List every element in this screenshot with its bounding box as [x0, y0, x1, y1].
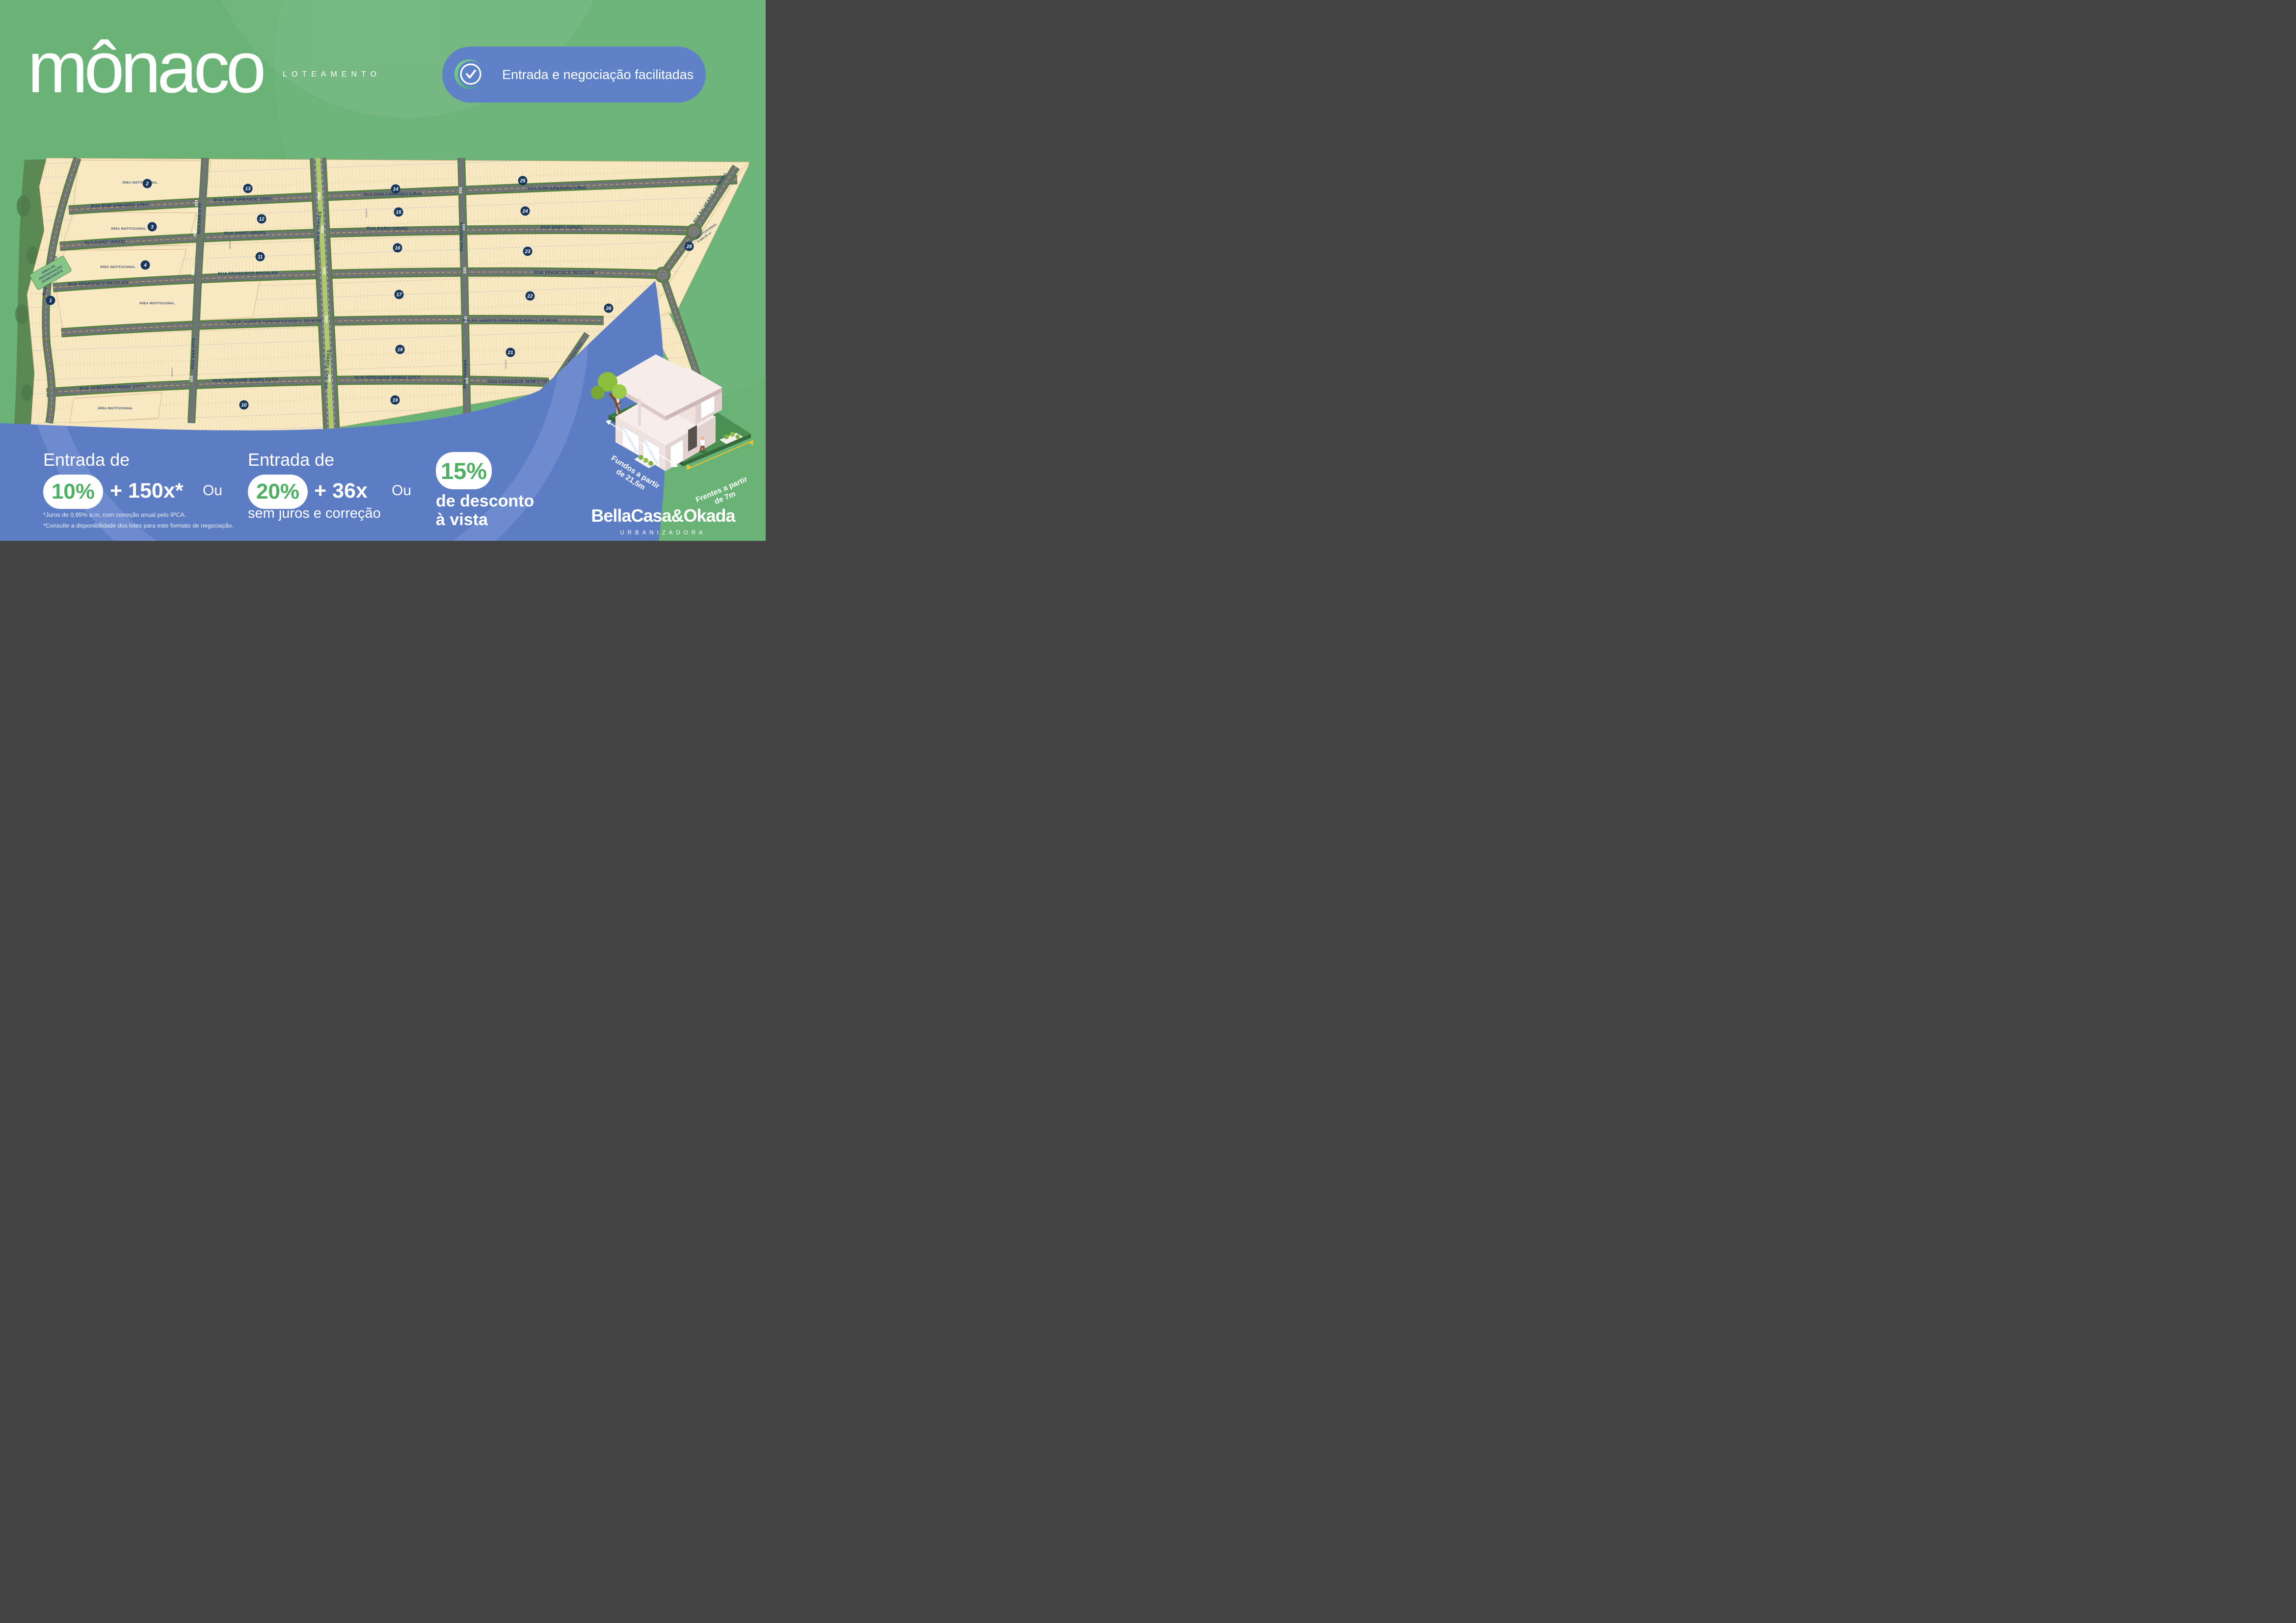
- offer-3-pill: 15%: [436, 452, 492, 489]
- svg-text:23: 23: [524, 249, 531, 255]
- street-panama-label: RUA PANAMÁ: [459, 222, 464, 251]
- logo-wordmark: mônaco: [27, 31, 263, 104]
- developer-logo: BellaCasa&Okada URBANIZADORA: [586, 506, 741, 536]
- quadra-badge: 1: [46, 296, 55, 305]
- institutional-label: ÁREA INSTITUCIONAL: [139, 302, 175, 305]
- institutional-label: ÁREA INSTITUCIONAL: [122, 181, 158, 185]
- offer-2-connector: Ou: [392, 482, 411, 499]
- svg-text:13: 13: [245, 186, 251, 192]
- svg-text:17: 17: [396, 293, 402, 298]
- check-circle-icon: [454, 58, 486, 90]
- quadra-badge: 11: [256, 252, 265, 262]
- offer-3-discount-line-1: de desconto: [436, 492, 534, 511]
- offer-2-note: sem juros e correção: [248, 506, 381, 522]
- svg-text:14: 14: [393, 187, 399, 192]
- institutional-label: ÁREA INSTITUCIONAL: [98, 407, 133, 410]
- quadra-badge: 17: [395, 290, 404, 299]
- street-darci-label: RUA DARCI ISRAEL: [367, 226, 409, 231]
- disclaimer-line-2: *Consulte a disponibilidade dos lotes pa…: [43, 521, 234, 531]
- street-drumond-label: RUA DR. ALBERTO FERNANDO BARDDAL DRUMOND: [463, 319, 558, 322]
- disclaimer-line-1: *Juros de 0,95% a.m, com correção anual …: [43, 510, 186, 520]
- offer-1-pill: 10%: [43, 475, 103, 509]
- quadra-badge: 28: [685, 242, 694, 251]
- svg-text:150,00 m²: 150,00 m²: [171, 367, 173, 377]
- feature-badge: Entrada e negociação facilitadas: [442, 47, 706, 103]
- street-maculan-label: RUA FRANCISCO MACULAN: [534, 270, 594, 275]
- roundabout-2: [655, 267, 670, 282]
- svg-text:15: 15: [396, 210, 401, 215]
- quadra-badge: 15: [394, 208, 403, 217]
- svg-text:16: 16: [395, 246, 400, 251]
- offer-2-installments: + 36x: [314, 479, 368, 503]
- svg-text:4: 4: [143, 263, 147, 268]
- svg-text:151,88 m²: 151,88 m²: [365, 208, 368, 218]
- offer-2-pill: 20%: [248, 475, 308, 509]
- svg-text:25: 25: [519, 179, 526, 184]
- quadra-badge: 19: [391, 396, 400, 405]
- quadra-badge: 21: [506, 348, 515, 357]
- institutional-label: ÁREA INSTITUCIONAL: [111, 227, 146, 231]
- developer-subtitle: URBANIZADORA: [586, 530, 741, 536]
- svg-text:21: 21: [507, 350, 513, 356]
- poster-canvas: RUA DOM ARMANDO CÍRIO RUA DOM ARMANDO CÍ…: [0, 0, 766, 541]
- quadra-badge: 13: [243, 184, 253, 193]
- offer-1-connector: Ou: [203, 482, 222, 499]
- quadra-badge: 12: [257, 214, 267, 224]
- quadra-badge: 14: [391, 185, 400, 194]
- quadra-badge: 10: [240, 400, 249, 410]
- quadra-badge: 2: [143, 179, 152, 188]
- svg-text:24: 24: [522, 209, 528, 214]
- quadra-badge: 3: [148, 222, 157, 232]
- svg-text:150,50 m²: 150,50 m²: [229, 239, 231, 249]
- street-zotti-label: RUA VEREADOR IRINEU ZOTTI: [488, 379, 554, 384]
- svg-text:12: 12: [259, 217, 265, 222]
- offer-1-heading: Entrada de: [43, 450, 130, 470]
- street-panama-label: RUA PANAMÁ: [462, 359, 467, 389]
- svg-text:26: 26: [605, 306, 612, 312]
- svg-text:1: 1: [49, 298, 52, 304]
- institutional-label: ÁREA INSTITUCIONAL: [100, 266, 135, 269]
- quadra-badge: 24: [521, 207, 530, 216]
- developer-name: BellaCasa&Okada: [586, 506, 741, 526]
- quadra-badge: 16: [393, 243, 402, 253]
- offer-3-discount-line-2: à vista: [436, 510, 488, 530]
- quadra-badge: 4: [141, 261, 150, 270]
- quadra-badge: 26: [604, 304, 614, 313]
- svg-text:10: 10: [241, 403, 247, 408]
- svg-text:19: 19: [392, 398, 398, 403]
- quadra-badge: 25: [518, 176, 528, 186]
- svg-text:11: 11: [258, 255, 263, 260]
- street-darci-label: RUA DARCI ISRAEL: [224, 230, 267, 235]
- svg-text:28: 28: [686, 244, 692, 250]
- logo-subtitle: LOTEAMENTO: [283, 70, 381, 79]
- offer-1-installments: + 150x*: [110, 479, 183, 503]
- quadra-badge: 22: [526, 292, 535, 301]
- svg-text:22: 22: [527, 294, 533, 299]
- svg-text:2: 2: [145, 182, 149, 187]
- quadra-badge: 18: [396, 345, 405, 354]
- svg-text:3: 3: [151, 225, 154, 230]
- offer-2-heading: Entrada de: [248, 450, 334, 470]
- quadra-badge: 23: [523, 247, 533, 256]
- svg-text:192,50 m²: 192,50 m²: [505, 359, 507, 369]
- street-darci-label: RUA DARCI ISRAEL: [541, 225, 583, 230]
- svg-text:18: 18: [397, 347, 403, 353]
- street-zotti-label: RUA VEREADOR IRINEU ZOTTI: [355, 375, 421, 380]
- badge-label: Entrada e negociação facilitadas: [502, 47, 694, 103]
